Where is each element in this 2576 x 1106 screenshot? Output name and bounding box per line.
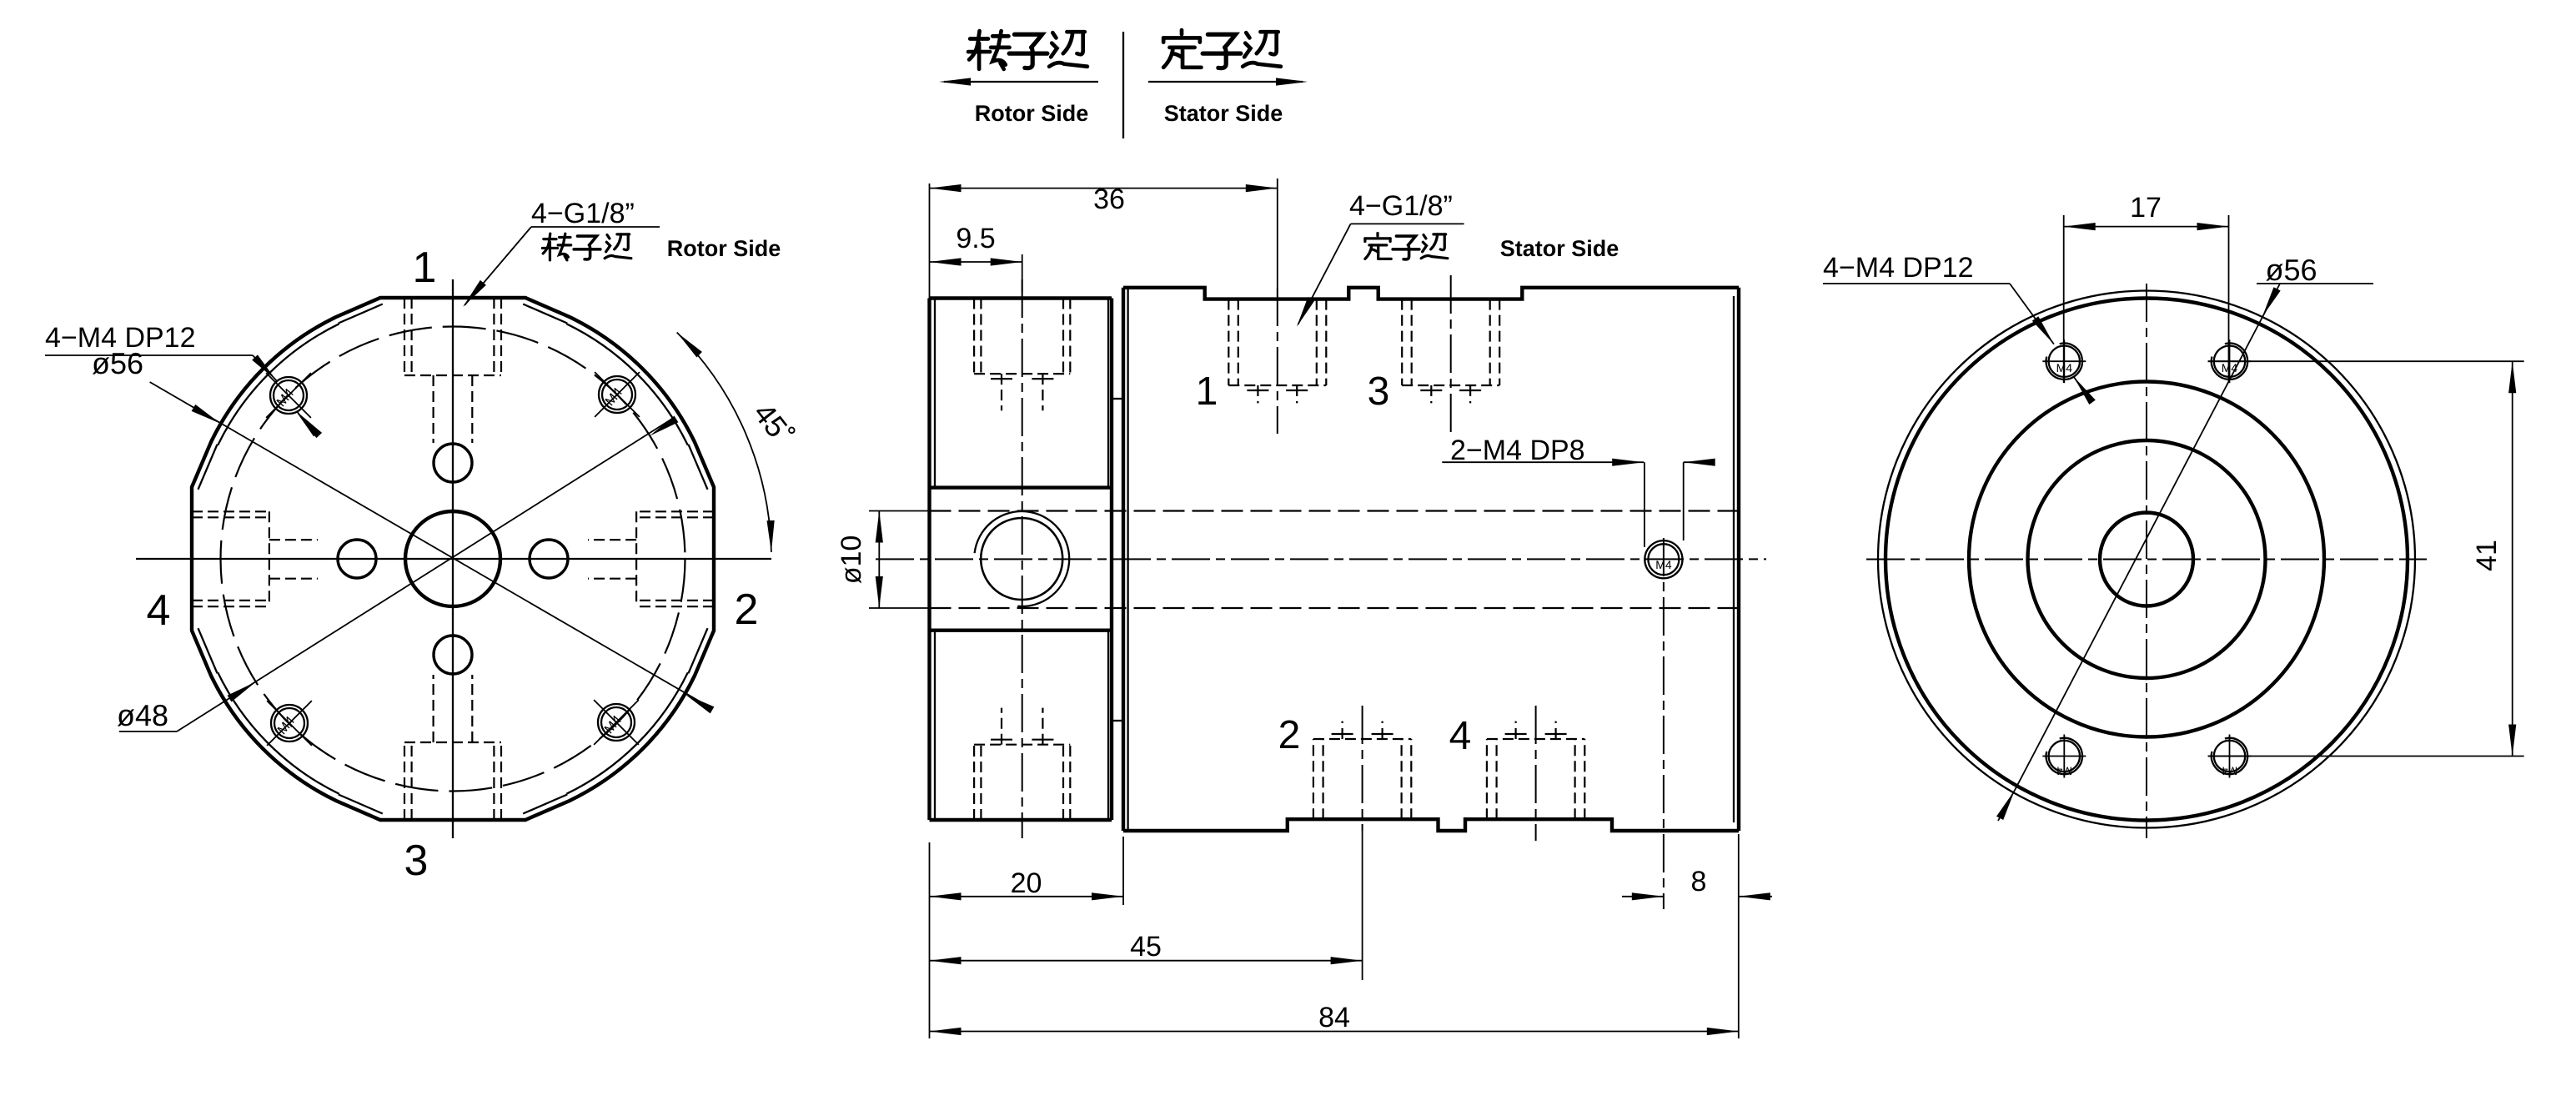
svg-text:45: 45 xyxy=(1130,931,1162,963)
svg-text:Rotor Side: Rotor Side xyxy=(975,101,1089,126)
svg-text:4: 4 xyxy=(147,586,171,635)
svg-text:2: 2 xyxy=(1278,713,1301,757)
svg-text:4−G1/8”: 4−G1/8” xyxy=(531,198,635,229)
svg-text:3: 3 xyxy=(404,837,429,885)
svg-text:4−G1/8”: 4−G1/8” xyxy=(1349,190,1453,222)
svg-text:M4: M4 xyxy=(2056,765,2072,778)
svg-text:ø48: ø48 xyxy=(117,698,168,732)
svg-text:8: 8 xyxy=(1691,866,1707,897)
svg-text:ø10: ø10 xyxy=(836,535,867,585)
svg-text:20: 20 xyxy=(1011,867,1042,899)
svg-text:36: 36 xyxy=(1093,183,1125,215)
svg-text:17: 17 xyxy=(2130,192,2162,224)
svg-text:Stator Side: Stator Side xyxy=(1164,101,1283,126)
svg-text:ø56: ø56 xyxy=(2266,253,2317,287)
svg-text:M4: M4 xyxy=(2222,765,2238,778)
svg-text:Stator Side: Stator Side xyxy=(1500,236,1619,261)
svg-text:Rotor Side: Rotor Side xyxy=(667,236,781,261)
svg-text:84: 84 xyxy=(1318,1002,1350,1033)
svg-text:ø56: ø56 xyxy=(92,346,143,380)
svg-text:4−M4 DP12: 4−M4 DP12 xyxy=(1823,252,1974,284)
svg-text:2: 2 xyxy=(735,586,759,634)
svg-text:1: 1 xyxy=(413,244,437,292)
svg-text:9.5: 9.5 xyxy=(956,223,995,254)
svg-text:4: 4 xyxy=(1449,714,1472,758)
svg-text:1: 1 xyxy=(1196,370,1218,414)
svg-text:3: 3 xyxy=(1368,370,1390,414)
svg-text:41: 41 xyxy=(2471,540,2503,571)
